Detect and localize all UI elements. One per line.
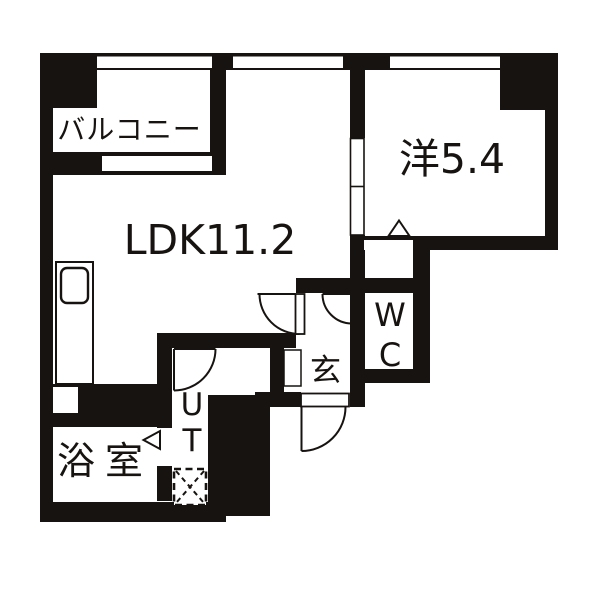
- label-utility: UT: [172, 387, 208, 457]
- label-wc: WC: [369, 296, 406, 368]
- hall-door-leaf: [296, 294, 305, 334]
- wall-entrance-band: [255, 392, 301, 407]
- window-ldk-balcony: [102, 156, 212, 171]
- wall-niche: [53, 387, 78, 413]
- window-ldk-top: [233, 57, 343, 69]
- wall-ldk-bottom: [157, 333, 296, 348]
- label-entrance: 玄: [309, 355, 342, 387]
- wall-balcony-right: [210, 53, 226, 175]
- label-western-room: 洋5.4: [390, 138, 514, 181]
- floorplan: バルコニー LDK11.2 洋5.4 WC 玄 UT 浴室: [0, 0, 600, 600]
- wall-top-left-block: [40, 53, 97, 108]
- wall-wc-right: [413, 236, 430, 383]
- window-balcony-top: [97, 57, 212, 69]
- wall-top-right-block: [500, 53, 558, 110]
- floorplan-drawing: [0, 0, 600, 600]
- wc-door: [323, 294, 353, 324]
- label-ldk: LDK11.2: [115, 219, 305, 262]
- utility-door: [174, 349, 216, 391]
- washing-machine-box: [174, 469, 206, 505]
- entrance-step: [284, 350, 301, 386]
- wall-wc-top: [296, 278, 413, 293]
- label-bathroom: 浴室: [57, 442, 153, 482]
- entrance-door-leaf: [301, 394, 349, 407]
- entrance-door: [301, 394, 349, 452]
- opening-western-closet: [364, 240, 413, 250]
- closet-door-triangle-icon: [389, 221, 410, 237]
- window-western-top: [390, 57, 500, 69]
- wall-entrance-right: [350, 383, 365, 407]
- label-balcony: バルコニー: [52, 115, 207, 144]
- kitchen-sink: [61, 268, 88, 303]
- sliding-door: [351, 139, 365, 236]
- wall-western-left-upper: [350, 70, 365, 138]
- wall-right: [545, 110, 558, 250]
- hall-door: [258, 294, 305, 334]
- wall-western-left-lower: [350, 235, 365, 383]
- wall-entrance-left: [270, 348, 284, 395]
- wall-southeast-block: [208, 395, 270, 516]
